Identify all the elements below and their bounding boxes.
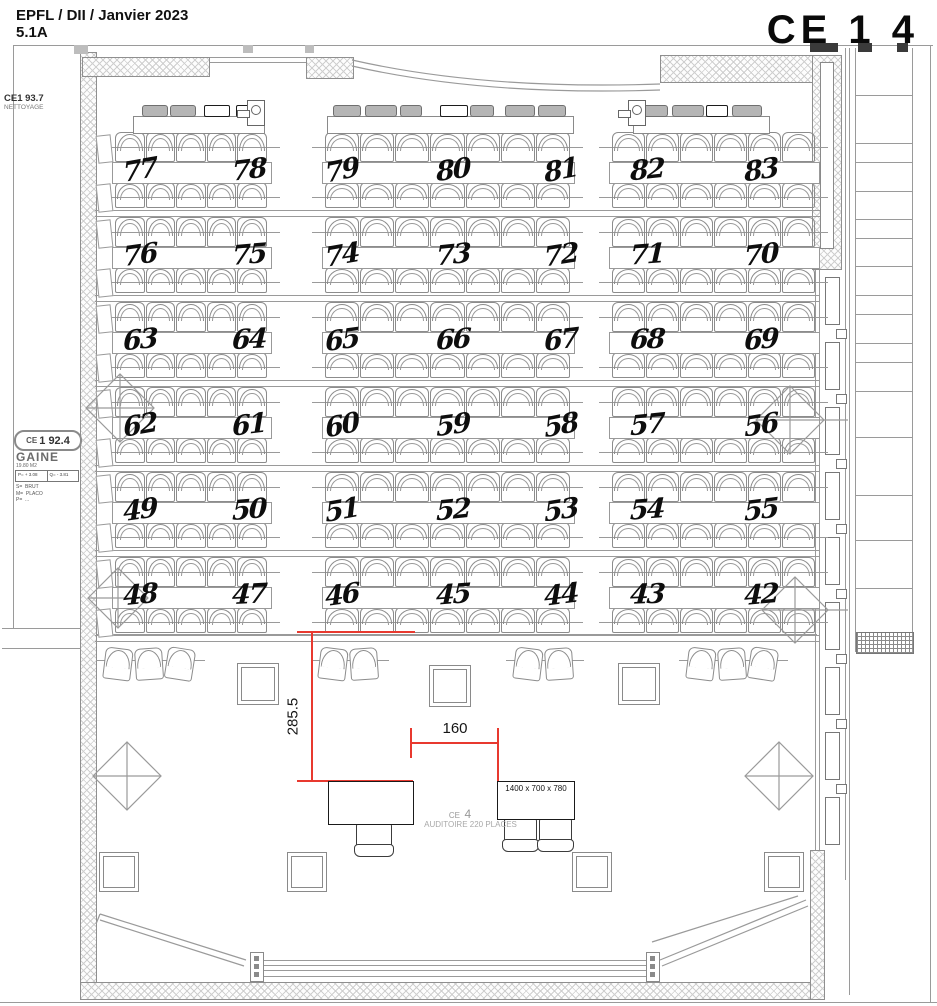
room-tag-prefix: CE <box>26 436 37 445</box>
gaine-spec-table: P= + 3.08 Q= - 3.81 <box>15 470 79 482</box>
dimension-label-horizontal: 160 <box>435 720 475 737</box>
seat-number: 75 <box>232 238 276 274</box>
auditorium-code-prefix: CE <box>449 811 460 820</box>
seat-number: 66 <box>435 323 480 358</box>
seat-number: 73 <box>436 238 480 275</box>
seat-number: 57 <box>630 408 674 445</box>
room-label-name: NETTOYAGE <box>4 104 44 111</box>
seat-number: 52 <box>436 493 480 530</box>
seat-number: 61 <box>232 407 276 445</box>
gaine-area: 19.80 M2 <box>16 463 37 469</box>
seat-number: 68 <box>629 324 675 358</box>
auditorium-caption: AUDITOIRE 220 PLACES <box>393 820 548 829</box>
seat-number: 42 <box>744 578 788 614</box>
seat-number: 53 <box>543 491 588 530</box>
seat-number: 80 <box>436 152 481 190</box>
dimension-tick-left <box>410 728 412 758</box>
room-tag-gaine: CE 1 92.4 <box>14 430 82 451</box>
seat-number: 56 <box>743 406 788 445</box>
seat-number: 70 <box>744 237 788 275</box>
seat-number: 48 <box>123 578 167 615</box>
gaine-spec-cell-left: P= + 3.08 <box>16 471 48 481</box>
seat-number: 55 <box>744 492 788 530</box>
dimension-tick-top <box>297 631 415 633</box>
seat-number: 65 <box>325 322 370 360</box>
ramp-right <box>652 896 808 966</box>
diamond-fixture <box>93 742 161 810</box>
presenter-table-left <box>328 781 414 825</box>
ramp-left <box>96 914 246 966</box>
seat-number: 59 <box>436 407 481 445</box>
gaine-spec-lines: S= BRUT M= PLACO P= ... <box>16 484 43 504</box>
seat-number: 44 <box>544 577 588 615</box>
seat-number: 67 <box>544 322 588 360</box>
dimension-label-vertical: 285.5 <box>285 687 302 747</box>
room-tag-code: 1 92.4 <box>39 435 70 447</box>
seat-number: 49 <box>123 492 168 530</box>
gaine-spec-cell-right: Q= - 3.81 <box>48 471 79 481</box>
room-label-code: CE1 93.7 <box>4 93 44 104</box>
auditorium-code-number: 4 <box>464 807 471 821</box>
ceiling-curve <box>352 60 660 85</box>
seat-number: 64 <box>231 324 277 358</box>
seat-number: 50 <box>232 493 276 529</box>
dimension-line-horizontal <box>411 742 499 744</box>
seat-number: 54 <box>629 493 674 528</box>
seat-number: 82 <box>630 153 674 190</box>
seat-number: 76 <box>123 237 168 275</box>
seat-number: 72 <box>543 236 588 275</box>
gaine-name: GAINE <box>16 450 59 464</box>
table-dimensions-label: 1400 x 700 x 780 <box>499 784 573 793</box>
seat-number: 63 <box>123 323 167 360</box>
seat-number: 69 <box>744 323 788 359</box>
seat-number: 43 <box>629 579 675 613</box>
diamond-fixture <box>745 742 813 810</box>
room-label-nettoyage: CE1 93.7 NETTOYAGE <box>4 93 44 111</box>
dimension-tick-right <box>497 728 499 784</box>
dimension-line-vertical <box>311 632 313 782</box>
seat-number: 83 <box>743 151 788 190</box>
seat-number: 45 <box>435 578 480 613</box>
seat-number: 47 <box>231 579 277 613</box>
seat-number: 78 <box>232 152 276 190</box>
seat-number: 71 <box>629 238 674 273</box>
seat-number: 46 <box>325 577 370 615</box>
floor-plan-sheet: EPFL / DII / Janvier 2023 5.1A CE 1 4 CE… <box>0 0 937 1006</box>
